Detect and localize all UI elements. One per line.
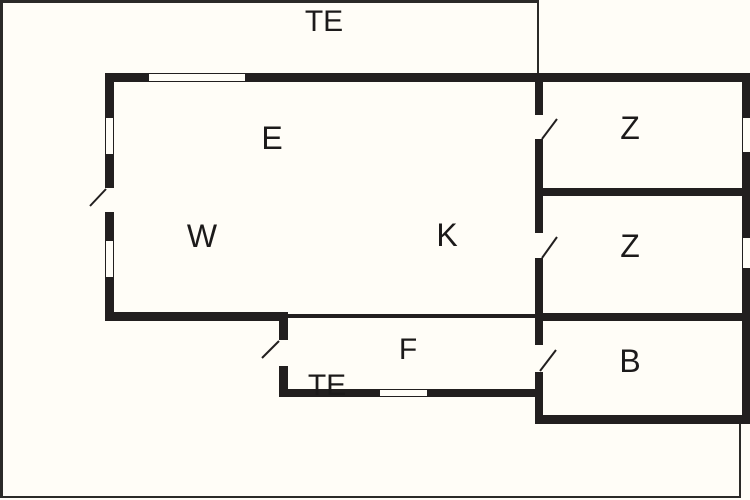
door-gap-bathroom xyxy=(534,345,544,372)
terrace-outline-left xyxy=(0,0,3,498)
wall-hall-top-partition xyxy=(288,314,535,318)
room-label-terrace-top: TE xyxy=(305,7,343,37)
room-label-entry: E xyxy=(261,122,282,154)
door-gap-bedroom-1 xyxy=(534,115,544,139)
room-label-bedroom-1: Z xyxy=(620,112,640,144)
window-left-upper xyxy=(105,117,115,155)
wall-bathroom-top xyxy=(543,313,742,321)
terrace-outline-bottom xyxy=(0,496,741,499)
window-right-lower xyxy=(742,237,750,269)
door-swing-bedroom-1 xyxy=(542,119,557,139)
room-label-living: W xyxy=(187,220,217,252)
room-label-terrace-bottom: TE xyxy=(308,371,346,401)
terrace-outline-right-lower xyxy=(739,420,742,498)
terrace-outline-top xyxy=(0,0,539,3)
door-swing-bedroom-2 xyxy=(542,237,557,258)
door-gap-living xyxy=(104,188,115,212)
door-gap-hall-exterior xyxy=(278,340,289,366)
window-hall-bottom xyxy=(379,389,428,398)
terrace-outline-right-upper xyxy=(537,0,540,76)
window-right-upper xyxy=(742,117,750,153)
wall-bathroom-bottom xyxy=(535,415,750,424)
room-label-bedroom-2: Z xyxy=(620,230,640,262)
room-label-hallway: F xyxy=(399,335,417,365)
room-label-kitchen: K xyxy=(436,219,457,251)
window-left-lower xyxy=(105,240,115,278)
wall-bedroom-divider xyxy=(543,188,742,196)
floorplan-canvas: TE E W K Z Z B F TE xyxy=(0,0,750,500)
wall-living-bottom xyxy=(105,312,288,321)
door-swing-hall-exterior xyxy=(262,341,279,358)
room-label-bathroom: B xyxy=(619,345,640,377)
window-top xyxy=(148,73,246,83)
door-gap-bedroom-2 xyxy=(534,233,544,258)
